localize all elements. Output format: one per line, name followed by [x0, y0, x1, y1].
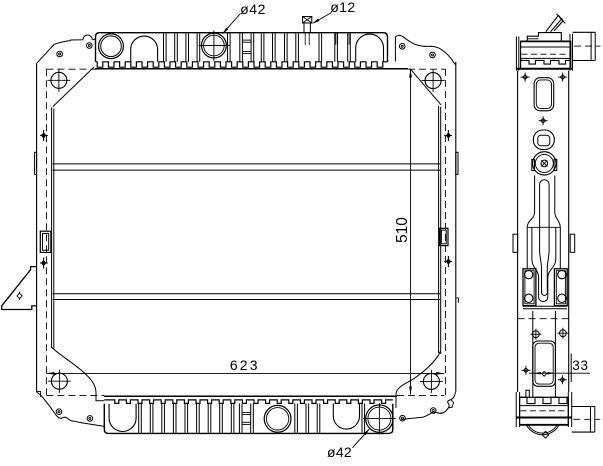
svg-text:ø12: ø12: [330, 0, 355, 15]
svg-text:ø42: ø42: [240, 1, 266, 17]
svg-text:510: 510: [394, 217, 411, 243]
svg-text:ø42: ø42: [327, 444, 352, 460]
svg-text:623: 623: [230, 357, 260, 373]
svg-text:33: 33: [572, 358, 589, 373]
